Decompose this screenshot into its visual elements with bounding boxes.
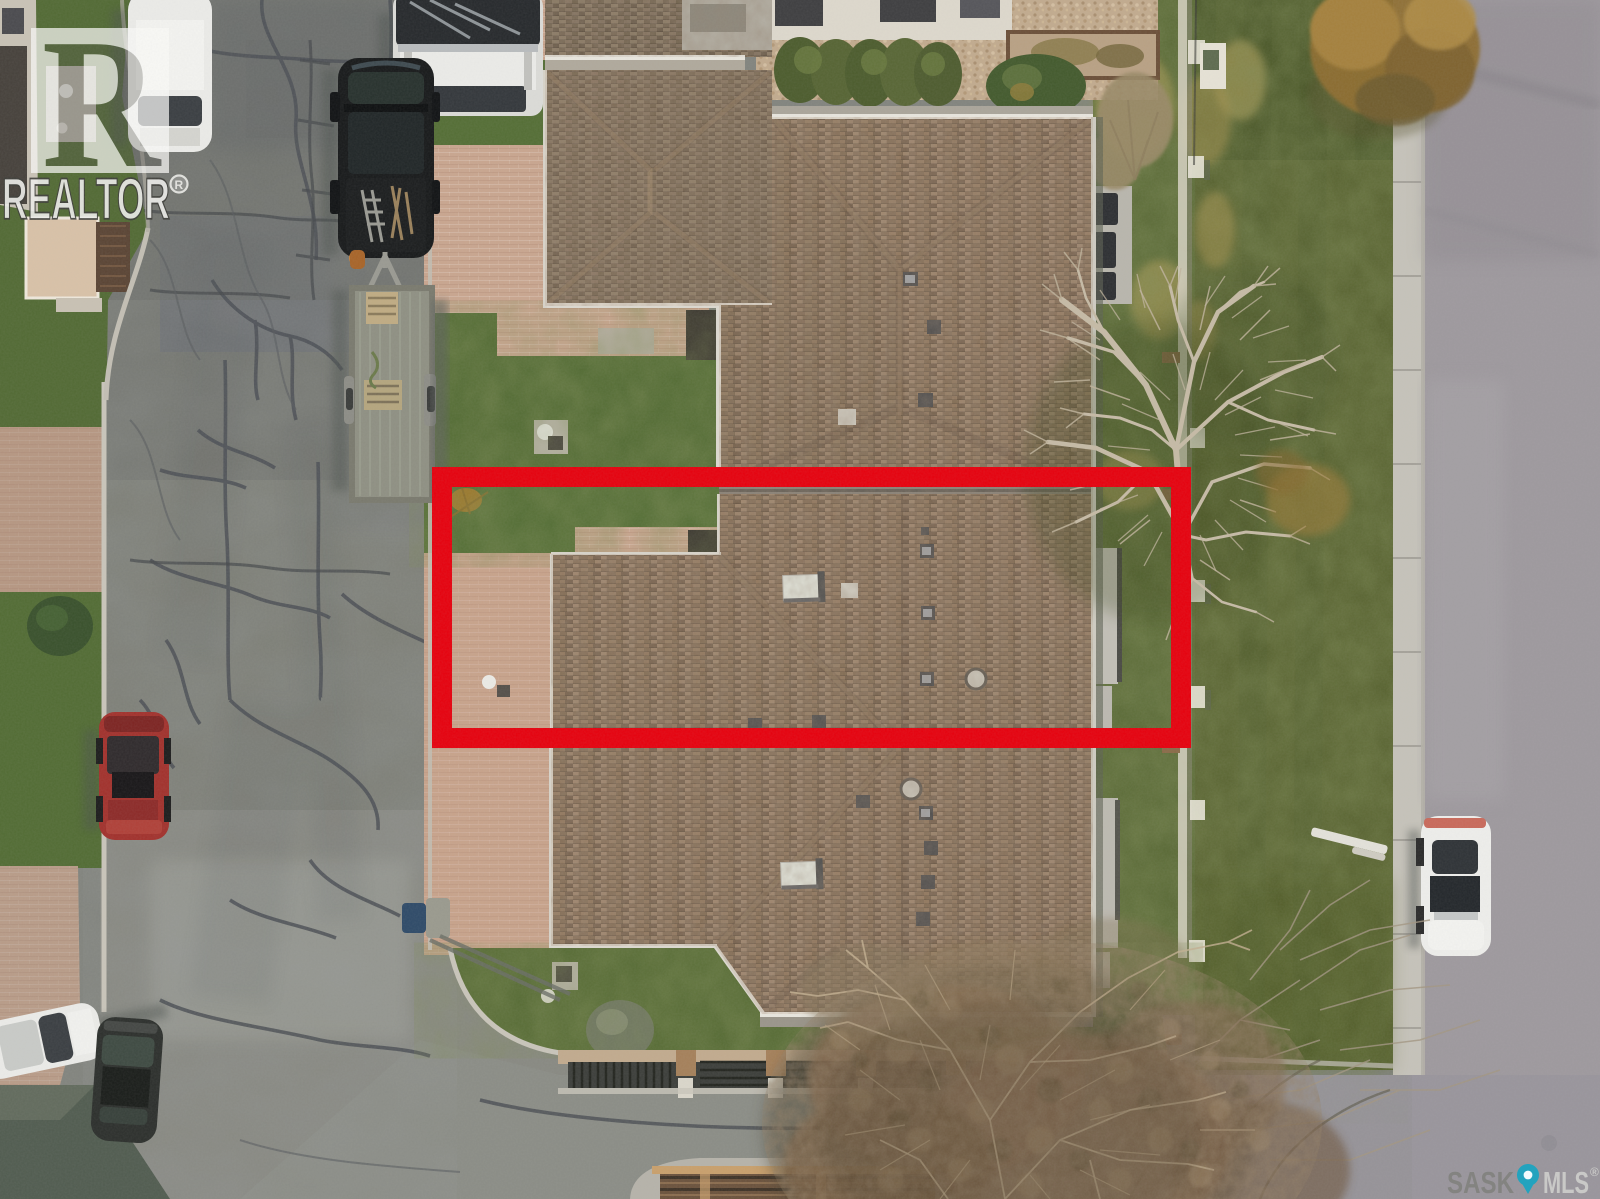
svg-text:SASK: SASK (1447, 1165, 1514, 1199)
svg-text:MLS: MLS (1543, 1165, 1589, 1199)
svg-text:®: ® (1590, 1165, 1599, 1179)
